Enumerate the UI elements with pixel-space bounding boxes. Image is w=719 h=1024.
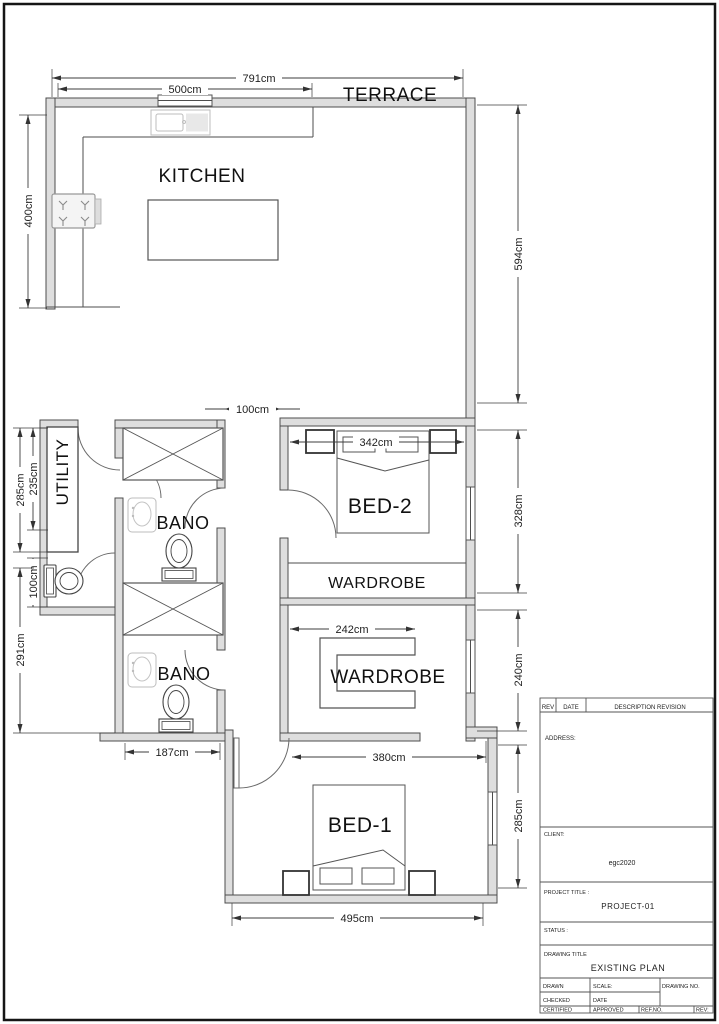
tb-address-label: ADDRESS: bbox=[545, 736, 576, 742]
stove bbox=[52, 194, 101, 228]
nightstand bbox=[430, 430, 456, 453]
tb-drawn-label: DRAWN bbox=[543, 984, 564, 990]
room-label-wardrobe-walkin: WARDROBE bbox=[330, 667, 445, 688]
tb-drawing-title-value: EXISTING PLAN bbox=[591, 963, 666, 973]
tb-drawing-title-label: DRAWING TITLE bbox=[544, 952, 587, 958]
pillow bbox=[362, 868, 394, 884]
tb-ref-no-label: REF.NO. bbox=[641, 1008, 663, 1014]
door-arc-utility bbox=[78, 428, 120, 470]
tb-scale-label: SCALE: bbox=[593, 984, 613, 990]
window-bed2 bbox=[466, 487, 475, 540]
tb-checked-label: CHECKED bbox=[543, 998, 570, 1004]
tb-client-label: CLIENT: bbox=[544, 832, 565, 838]
room-label-wardrobe-bed2: WARDROBE bbox=[328, 575, 426, 592]
dim-overall-top: 791cm bbox=[242, 73, 275, 85]
dim-kitchen-left: 400cm bbox=[23, 194, 35, 227]
door-leaf-bed1 bbox=[234, 738, 239, 788]
tb-certified-label: CERTIFIED bbox=[543, 1008, 572, 1014]
dim-bed1-right: 285cm bbox=[513, 799, 525, 832]
dim-wc-left: 100cm bbox=[28, 565, 40, 598]
room-label-utility: UTILITY bbox=[53, 439, 72, 506]
toilet-wc bbox=[44, 565, 83, 597]
window-bed1 bbox=[488, 792, 497, 845]
dim-corridor: 100cm bbox=[236, 404, 269, 416]
closet-xbox-upper bbox=[123, 428, 223, 480]
dim-terrace-right: 594cm bbox=[513, 237, 525, 270]
floorplan-page: 791cm 500cm 400cm 594cm 100cm 285cm 235c… bbox=[0, 0, 719, 1024]
dim-kitchen-top: 500cm bbox=[168, 84, 201, 96]
kitchen-sink bbox=[151, 110, 210, 135]
dim-utility-inner: 235cm bbox=[28, 462, 40, 495]
tb-approved-label: APPROVED bbox=[593, 1008, 624, 1014]
tb-rev-label: REV: bbox=[696, 1008, 709, 1014]
sink-bano-lower bbox=[128, 653, 156, 687]
dim-bed2-width: 342cm bbox=[359, 437, 392, 449]
room-label-bano-lower: BANO bbox=[157, 664, 210, 684]
window-kitchen bbox=[158, 95, 212, 106]
dim-wardrobe-width: 242cm bbox=[335, 624, 368, 636]
sink-bano-upper bbox=[128, 498, 156, 532]
tb-date-label: DATE bbox=[593, 998, 608, 1004]
titleblock: REV DATE DESCRIPTION REVISION ADDRESS: C… bbox=[540, 698, 713, 1014]
tb-project-label: PROJECT TITLE : bbox=[544, 890, 590, 896]
nightstand bbox=[283, 871, 309, 895]
dim-bed1-bottom: 495cm bbox=[340, 913, 373, 925]
tb-project-value: PROJECT-01 bbox=[601, 902, 655, 911]
tb-date-header: DATE bbox=[563, 705, 579, 711]
kitchen-island bbox=[148, 200, 278, 260]
bed1-furniture bbox=[283, 785, 435, 895]
nightstand bbox=[409, 871, 435, 895]
dim-bano-width: 187cm bbox=[155, 747, 188, 759]
room-label-kitchen: KITCHEN bbox=[159, 166, 246, 187]
door-arc-bed2 bbox=[288, 490, 336, 538]
room-label-bed1: BED-1 bbox=[328, 814, 392, 837]
tb-client-value: egc2020 bbox=[609, 860, 636, 867]
dim-bed2-right: 328cm bbox=[513, 494, 525, 527]
room-label-terrace: TERRACE bbox=[343, 85, 437, 106]
tb-rev-header: REV bbox=[542, 705, 554, 711]
tb-drawing-no-label: DRAWING NO. bbox=[662, 984, 700, 990]
dim-wardrobe-right: 240cm bbox=[513, 653, 525, 686]
nightstand bbox=[306, 430, 334, 453]
toilet-bano-lower bbox=[159, 685, 193, 732]
door-arc-bed1 bbox=[239, 738, 289, 788]
dim-bed1-top: 380cm bbox=[372, 752, 405, 764]
toilet-bano-upper bbox=[162, 534, 196, 581]
closet-xbox-lower bbox=[123, 583, 223, 635]
tb-description-header: DESCRIPTION REVISION bbox=[614, 705, 685, 711]
tb-status-label: STATUS : bbox=[544, 928, 568, 934]
pillow bbox=[320, 868, 352, 884]
room-label-bed2: BED-2 bbox=[348, 495, 412, 518]
dim-lower-left: 291cm bbox=[15, 633, 27, 666]
room-label-bano-upper: BANO bbox=[156, 513, 209, 533]
window-wardrobe bbox=[466, 640, 475, 693]
